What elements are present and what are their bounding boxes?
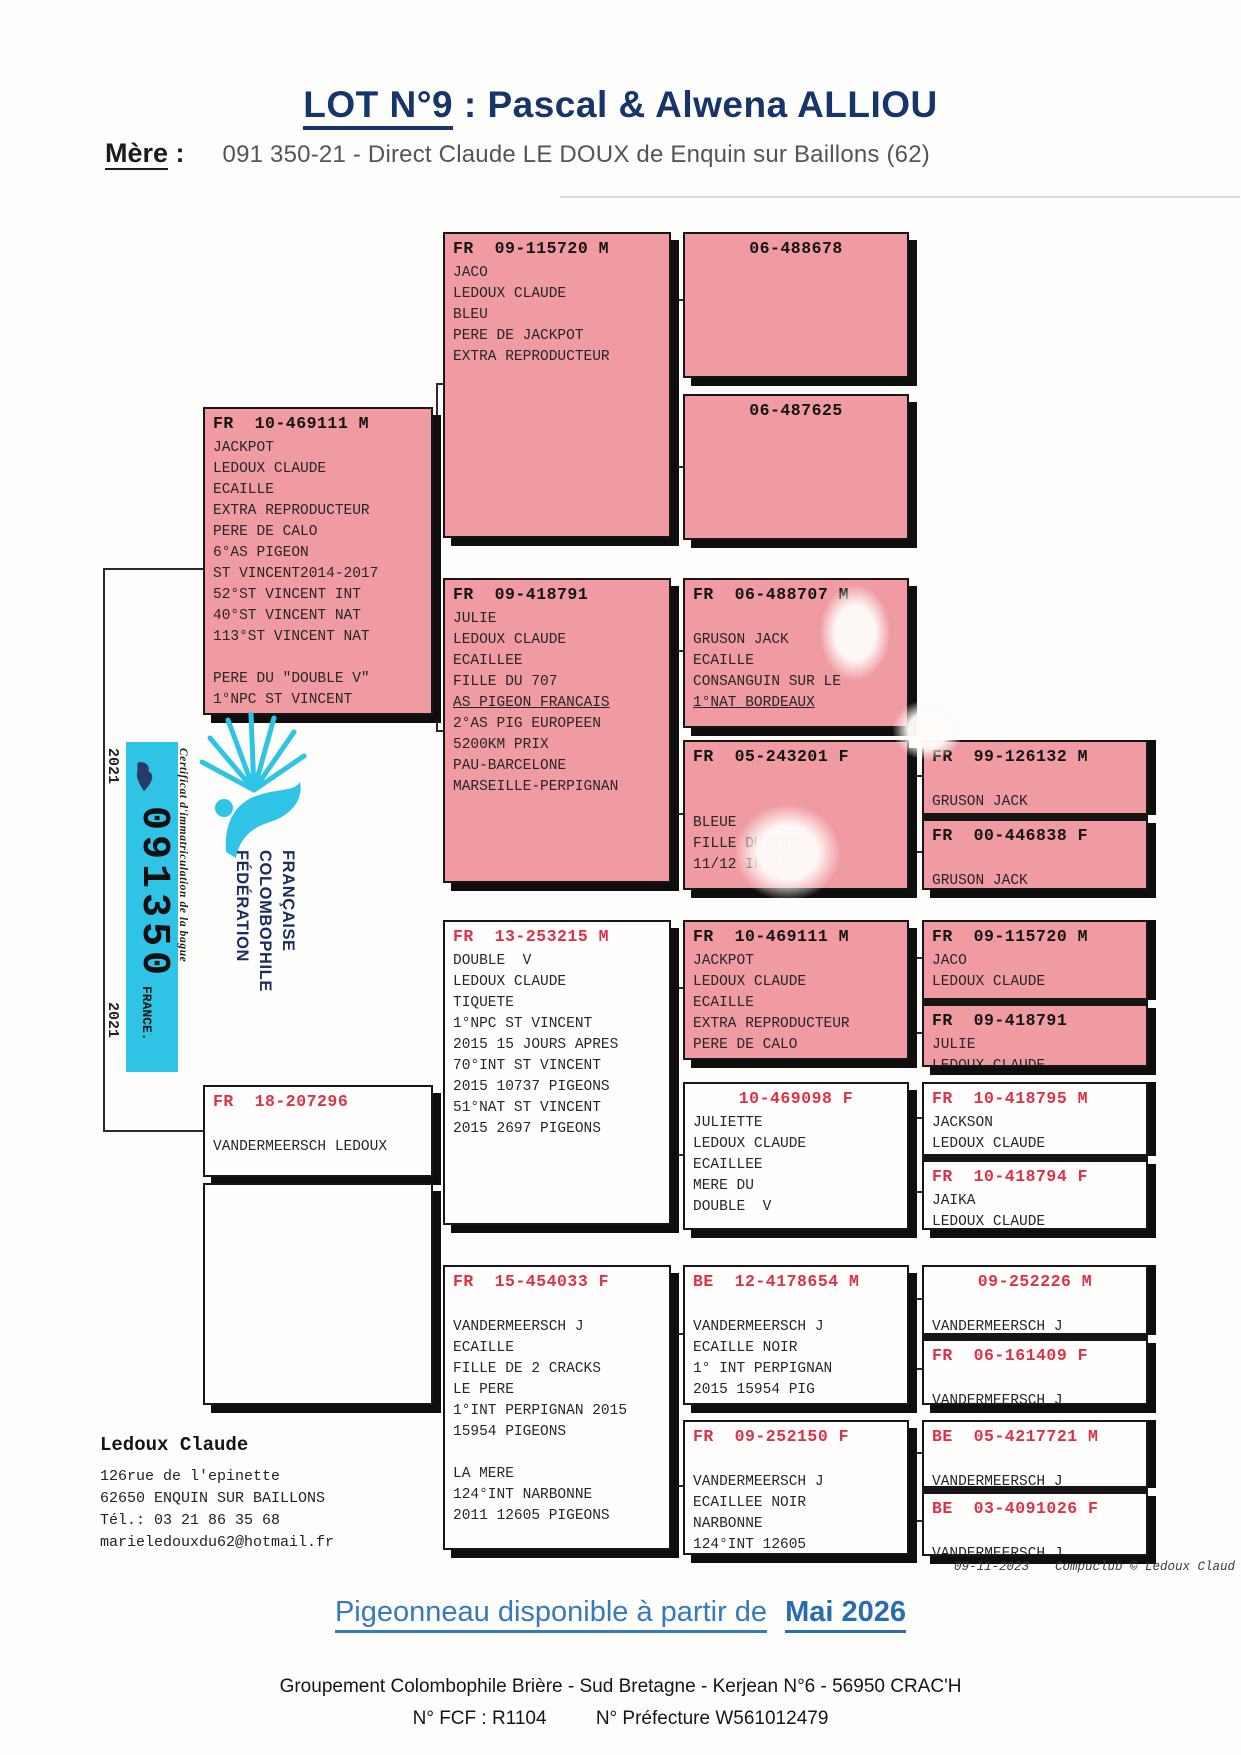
pigeon-info-line: DOUBLE V <box>693 1197 899 1218</box>
pedigree-box: BE 05-4217721 M VANDERMEERSCH J <box>922 1420 1148 1488</box>
pedigree-box: FR 06-161409 F VANDERMEERSCH J <box>922 1335 1148 1405</box>
pigeon-info-line: ST VINCENT2014-2017 <box>213 564 423 585</box>
pigeon-info-line <box>693 771 899 792</box>
breeder-email: marieledouxdu62@hotmail.fr <box>100 1532 334 1554</box>
pigeon-info-line: PERE DE JACKPOT <box>453 326 661 347</box>
pigeon-info-line: FILLE DU 707 <box>453 672 661 693</box>
pigeon-info-line: LEDOUX CLAUDE <box>213 459 423 480</box>
pigeon-info-line: ECAILLE <box>453 1338 661 1359</box>
pedigree-connector <box>103 568 105 1132</box>
pigeon-info-line <box>932 1523 1138 1544</box>
federation-bird-icon <box>196 712 308 867</box>
pigeon-info-line: PERE DU "DOUBLE V" <box>213 669 423 690</box>
pedigree-box: FR 09-115720 MJACOLEDOUX CLAUDEBLEUPERE … <box>443 232 671 538</box>
scan-artifact <box>893 700 963 760</box>
pigeon-info-line: 52°ST VINCENT INT <box>213 585 423 606</box>
pedigree-connector <box>103 568 205 570</box>
pigeon-info-line <box>693 1451 899 1472</box>
pigeon-info-line <box>213 1116 423 1137</box>
pigeon-info-line: VANDERMEERSCH LEDOUX <box>213 1137 423 1158</box>
certificate-label: Certificat d'immatriculation de la bague <box>177 748 189 962</box>
pedigree-box: FR 00-446838 F GRUSON JACK <box>922 815 1148 890</box>
pedigree-connector <box>914 775 916 853</box>
pigeon-info-line: DOUBLE V <box>453 951 661 972</box>
pigeon-info-line: EXTRA REPRODUCTEUR <box>453 347 661 368</box>
pigeon-info-line: 40°ST VINCENT NAT <box>213 606 423 627</box>
mother-ring-info: 091 350-21 - Direct Claude LE DOUX de En… <box>223 141 930 169</box>
pigeon-info-line: NARBONNE <box>693 1514 899 1535</box>
prefecture-number: N° Préfecture W561012479 <box>596 1708 829 1729</box>
fcf-number: N° FCF : R1104 <box>413 1708 547 1729</box>
pigeon-info-line: 6°AS PIGEON <box>213 543 423 564</box>
pigeon-info-line: 2015 2697 PIGEONS <box>453 1119 661 1140</box>
federation-name: FRANÇAISECOLOMBOPHILEFÉDÉRATION <box>230 850 299 992</box>
pigeon-info-line: 124°INT NARBONNE <box>453 1485 661 1506</box>
ring-number: 091350 <box>131 806 176 980</box>
pigeon-info-line: VANDERMEERSCH J <box>693 1472 899 1493</box>
pedigree-box: 06-488678 <box>683 232 909 378</box>
pigeon-info-line: LEDOUX CLAUDE <box>932 972 1138 993</box>
pigeon-info-line: 1°NAT BORDEAUX <box>693 693 899 714</box>
pedigree-connector <box>675 299 677 468</box>
pigeon-info-line: MARSEILLE-PERPIGNAN <box>453 777 661 798</box>
pigeon-ring: FR 06-161409 F <box>932 1346 1138 1365</box>
pigeon-info-line: ECAILLEE <box>693 1155 899 1176</box>
pigeon-info-line: JACO <box>932 951 1138 972</box>
pigeon-info-line <box>453 1443 661 1464</box>
pigeon-info-line <box>932 1451 1138 1472</box>
pigeon-info-line: LEDOUX CLAUDE <box>453 284 661 305</box>
pedigree-box: FR 15-454033 F VANDERMEERSCH JECAILLEFIL… <box>443 1265 671 1550</box>
mother-row: Mère : 091 350-21 - Direct Claude LE DOU… <box>105 138 930 169</box>
pigeon-ring: FR 15-454033 F <box>453 1272 661 1291</box>
pedigree-connector <box>675 650 677 815</box>
pigeon-info-line: VANDERMEERSCH J <box>693 1317 899 1338</box>
pigeon-info-line <box>932 850 1138 871</box>
pedigree-box: FR 18-207296 VANDERMEERSCH LEDOUX <box>203 1085 433 1177</box>
lot-number: LOT N°9 <box>303 84 453 130</box>
pigeon-info-line: LEDOUX CLAUDE <box>932 1134 1138 1155</box>
pigeon-info-line: 15954 PIGEONS <box>453 1422 661 1443</box>
pigeon-info-line: EXTRA REPRODUCTEUR <box>693 1014 899 1035</box>
pedigree-box: FR 10-418795 MJACKSONLEDOUX CLAUDE <box>922 1082 1148 1156</box>
pigeon-info-line: LEDOUX CLAUDE <box>932 1056 1138 1067</box>
pedigree-connector <box>914 1298 916 1370</box>
pedigree-box: BE 03-4091026 F VANDERMEERSCH J <box>922 1488 1148 1556</box>
pigeon-ring: 06-487625 <box>693 401 899 420</box>
pedigree-box: FR 09-252150 F VANDERMEERSCH JECAILLEE N… <box>683 1420 909 1555</box>
pigeon-info-line: JULIETTE <box>693 1113 899 1134</box>
federation-name-word: FRANÇAISE <box>276 850 299 992</box>
federation-name-word: FÉDÉRATION <box>230 850 253 992</box>
scan-artifact-line <box>560 196 1240 198</box>
pigeon-info-line: 2°AS PIG EUROPEEN <box>453 714 661 735</box>
availability-note: Pigeonneau disponible à partir de Mai 20… <box>0 1596 1241 1629</box>
pigeon-info-line: JACO <box>453 263 661 284</box>
pigeon-info-line: ECAILLE NOIR <box>693 1338 899 1359</box>
pigeon-info-line: 1°NPC ST VINCENT <box>213 690 423 711</box>
pigeon-ring: FR 00-446838 F <box>932 826 1138 845</box>
pigeon-info-line: VANDERMEERSCH J <box>932 1317 1138 1335</box>
scan-artifact <box>820 585 890 680</box>
pigeon-ring: 09-252226 M <box>932 1272 1138 1291</box>
print-date: 09-11-2023 <box>954 1560 1029 1574</box>
pigeon-ring: FR 10-469111 M <box>213 414 423 433</box>
pigeon-info-line: JULIE <box>932 1035 1138 1056</box>
certificate-year-top: 2021 <box>104 748 121 784</box>
pigeon-info-line: 51°NAT ST VINCENT <box>453 1098 661 1119</box>
pigeon-info-line: LEDOUX CLAUDE <box>932 1212 1138 1230</box>
pigeon-info-line: VANDERMEERSCH J <box>932 1472 1138 1488</box>
breeder-block: Ledoux Claude 126rue de l'epinette 62650… <box>100 1434 334 1554</box>
pedigree-box: FR 09-418791JULIELEDOUX CLAUDEECAILLEEFI… <box>443 578 671 883</box>
pigeon-ring: FR 10-418794 F <box>932 1167 1138 1186</box>
pigeon-info-line: BLEU <box>453 305 661 326</box>
pigeon-info-line: PAU-BARCELONE <box>453 756 661 777</box>
breeder-address-line1: 126rue de l'epinette <box>100 1466 334 1488</box>
pigeon-ring: BE 03-4091026 F <box>932 1499 1138 1518</box>
pedigree-box: 06-487625 <box>683 394 909 540</box>
pigeon-ring: BE 05-4217721 M <box>932 1427 1138 1446</box>
pigeon-info-line <box>932 771 1138 792</box>
breeder-address-line2: 62650 ENQUIN SUR BAILLONS <box>100 1488 334 1510</box>
pigeon-info-line: 2015 15 JOURS APRES <box>453 1035 661 1056</box>
pigeon-info-line: LEDOUX CLAUDE <box>693 972 899 993</box>
pedigree-box: FR 10-418794 FJAIKALEDOUX CLAUDE <box>922 1156 1148 1230</box>
pedigree-box: FR 09-115720 MJACOLEDOUX CLAUDE <box>922 920 1148 1000</box>
title-owners: : Pascal & Alwena ALLIOU <box>453 84 938 125</box>
pigeon-info-line: ECAILLEE <box>453 651 661 672</box>
pigeon-ring: FR 05-243201 F <box>693 747 899 766</box>
pigeon-info-line: LE PERE <box>453 1380 661 1401</box>
pigeon-ring: FR 18-207296 <box>213 1092 423 1111</box>
pigeon-info-line: ECAILLEE NOIR <box>693 1493 899 1514</box>
pigeon-info-line: GRUSON JACK <box>932 792 1138 813</box>
pedigree-box: BE 12-4178654 M VANDERMEERSCH JECAILLE N… <box>683 1265 909 1405</box>
pigeon-info-line: MERE DU <box>693 1176 899 1197</box>
pigeon-info-line: 5200KM PRIX <box>453 735 661 756</box>
scan-artifact <box>735 805 840 900</box>
availability-text: Pigeonneau disponible à partir de <box>335 1596 767 1633</box>
pigeon-info-line: 1° INT PERPIGNAN <box>693 1359 899 1380</box>
pedigree-connector <box>103 1130 205 1132</box>
pigeon-info-line <box>932 1296 1138 1317</box>
pigeon-info-line: ECAILLE <box>693 993 899 1014</box>
print-software: Compuclub © Ledoux Claud <box>1055 1560 1235 1574</box>
fcf-stamp-icon <box>133 760 155 799</box>
pigeon-info-line: TIQUETE <box>453 993 661 1014</box>
pigeon-info-line: JULIE <box>453 609 661 630</box>
pigeon-info-line: PERE DE CALO <box>693 1035 899 1056</box>
pigeon-info-line: VANDERMEERSCH J <box>932 1391 1138 1405</box>
pigeon-info-line <box>932 1370 1138 1391</box>
pedigree-box: 10-469098 FJULIETTELEDOUX CLAUDEECAILLEE… <box>683 1082 909 1230</box>
pigeon-info-line: ECAILLE <box>213 480 423 501</box>
pigeon-info-line: GRUSON JACK <box>932 871 1138 890</box>
breeder-name: Ledoux Claude <box>100 1434 334 1456</box>
pigeon-info-line: JACKPOT <box>213 438 423 459</box>
pedigree-box: FR 09-418791JULIELEDOUX CLAUDE <box>922 1000 1148 1067</box>
pigeon-ring: BE 12-4178654 M <box>693 1272 899 1291</box>
pigeon-info-line: LEDOUX CLAUDE <box>453 972 661 993</box>
pigeon-info-line: EXTRA REPRODUCTEUR <box>213 501 423 522</box>
club-info-line: Groupement Colombophile Brière - Sud Bre… <box>0 1676 1241 1698</box>
pigeon-ring: 10-469098 F <box>693 1089 899 1108</box>
federation-name-word: COLOMBOPHILE <box>253 850 276 992</box>
pigeon-info-line: 2011 12605 PIGEONS <box>453 1506 661 1527</box>
pigeon-ring: FR 09-252150 F <box>693 1427 899 1446</box>
pigeon-info-line: 70°INT ST VINCENT <box>453 1056 661 1077</box>
pigeon-info-line: LA MERE <box>453 1464 661 1485</box>
breeder-phone: Tél.: 03 21 86 35 68 <box>100 1510 334 1532</box>
page-title: LOT N°9 : Pascal & Alwena ALLIOU <box>0 84 1241 126</box>
availability-date: Mai 2026 <box>785 1596 906 1633</box>
country-label: FRANCE. <box>139 986 154 1041</box>
pedigree-box: 09-252226 M VANDERMEERSCH J <box>922 1265 1148 1335</box>
pigeon-info-line: VANDERMEERSCH J <box>453 1317 661 1338</box>
pigeon-info-line: 124°INT 12605 <box>693 1535 899 1555</box>
pigeon-info-line: JAIKA <box>932 1191 1138 1212</box>
pigeon-info-line <box>213 648 423 669</box>
pigeon-ring: FR 13-253215 M <box>453 927 661 946</box>
pigeon-info-line: FILLE DE 2 CRACKS <box>453 1359 661 1380</box>
pigeon-info-line: 2015 10737 PIGEONS <box>453 1077 661 1098</box>
pigeon-info-line: PERE DE CALO <box>213 522 423 543</box>
pigeon-info-line <box>693 1296 899 1317</box>
pigeon-info-line: 113°ST VINCENT NAT <box>213 627 423 648</box>
print-date-stamp: 09-11-2023 Compuclub © Ledoux Claud <box>954 1560 1235 1574</box>
pigeon-ring: 06-488678 <box>693 239 899 258</box>
pigeon-info-line <box>453 1296 661 1317</box>
certificate-year-bottom: 2021 <box>104 1002 121 1038</box>
pigeon-info-line: 1°NPC ST VINCENT <box>453 1014 661 1035</box>
pigeon-ring: FR 09-418791 <box>453 585 661 604</box>
pigeon-info-line: 2015 15954 PIG <box>693 1380 899 1401</box>
pigeon-ring: FR 10-418795 M <box>932 1089 1138 1108</box>
pigeon-ring: FR 09-418791 <box>932 1011 1138 1030</box>
pigeon-info-line: JACKPOT <box>693 951 899 972</box>
registration-line: N° FCF : R1104 N° Préfecture W561012479 <box>0 1708 1241 1730</box>
pedigree-connector <box>675 1333 677 1487</box>
pedigree-box <box>203 1183 433 1405</box>
pigeon-info-line: VANDERMEERSCH J <box>932 1544 1138 1556</box>
pigeon-info-line: AS PIGEON FRANCAIS <box>453 693 661 714</box>
pigeon-info-line: LEDOUX CLAUDE <box>693 1134 899 1155</box>
pigeon-info-line: LEDOUX CLAUDE <box>453 630 661 651</box>
pigeon-ring: FR 09-115720 M <box>932 927 1138 946</box>
pigeon-ring: FR 09-115720 M <box>453 239 661 258</box>
pigeon-info-line: JACKSON <box>932 1113 1138 1134</box>
pedigree-box: FR 10-469111 MJACKPOTLEDOUX CLAUDEECAILL… <box>683 920 909 1060</box>
pedigree-box: FR 10-469111 MJACKPOTLEDOUX CLAUDEECAILL… <box>203 407 433 715</box>
mother-label: Mère : <box>105 138 185 169</box>
pedigree-document: LOT N°9 : Pascal & Alwena ALLIOU Mère : … <box>0 0 1241 1755</box>
pigeon-info-line: 1°INT PERPIGNAN 2015 <box>453 1401 661 1422</box>
pedigree-box: FR 13-253215 MDOUBLE VLEDOUX CLAUDETIQUE… <box>443 920 671 1225</box>
pigeon-ring: FR 10-469111 M <box>693 927 899 946</box>
